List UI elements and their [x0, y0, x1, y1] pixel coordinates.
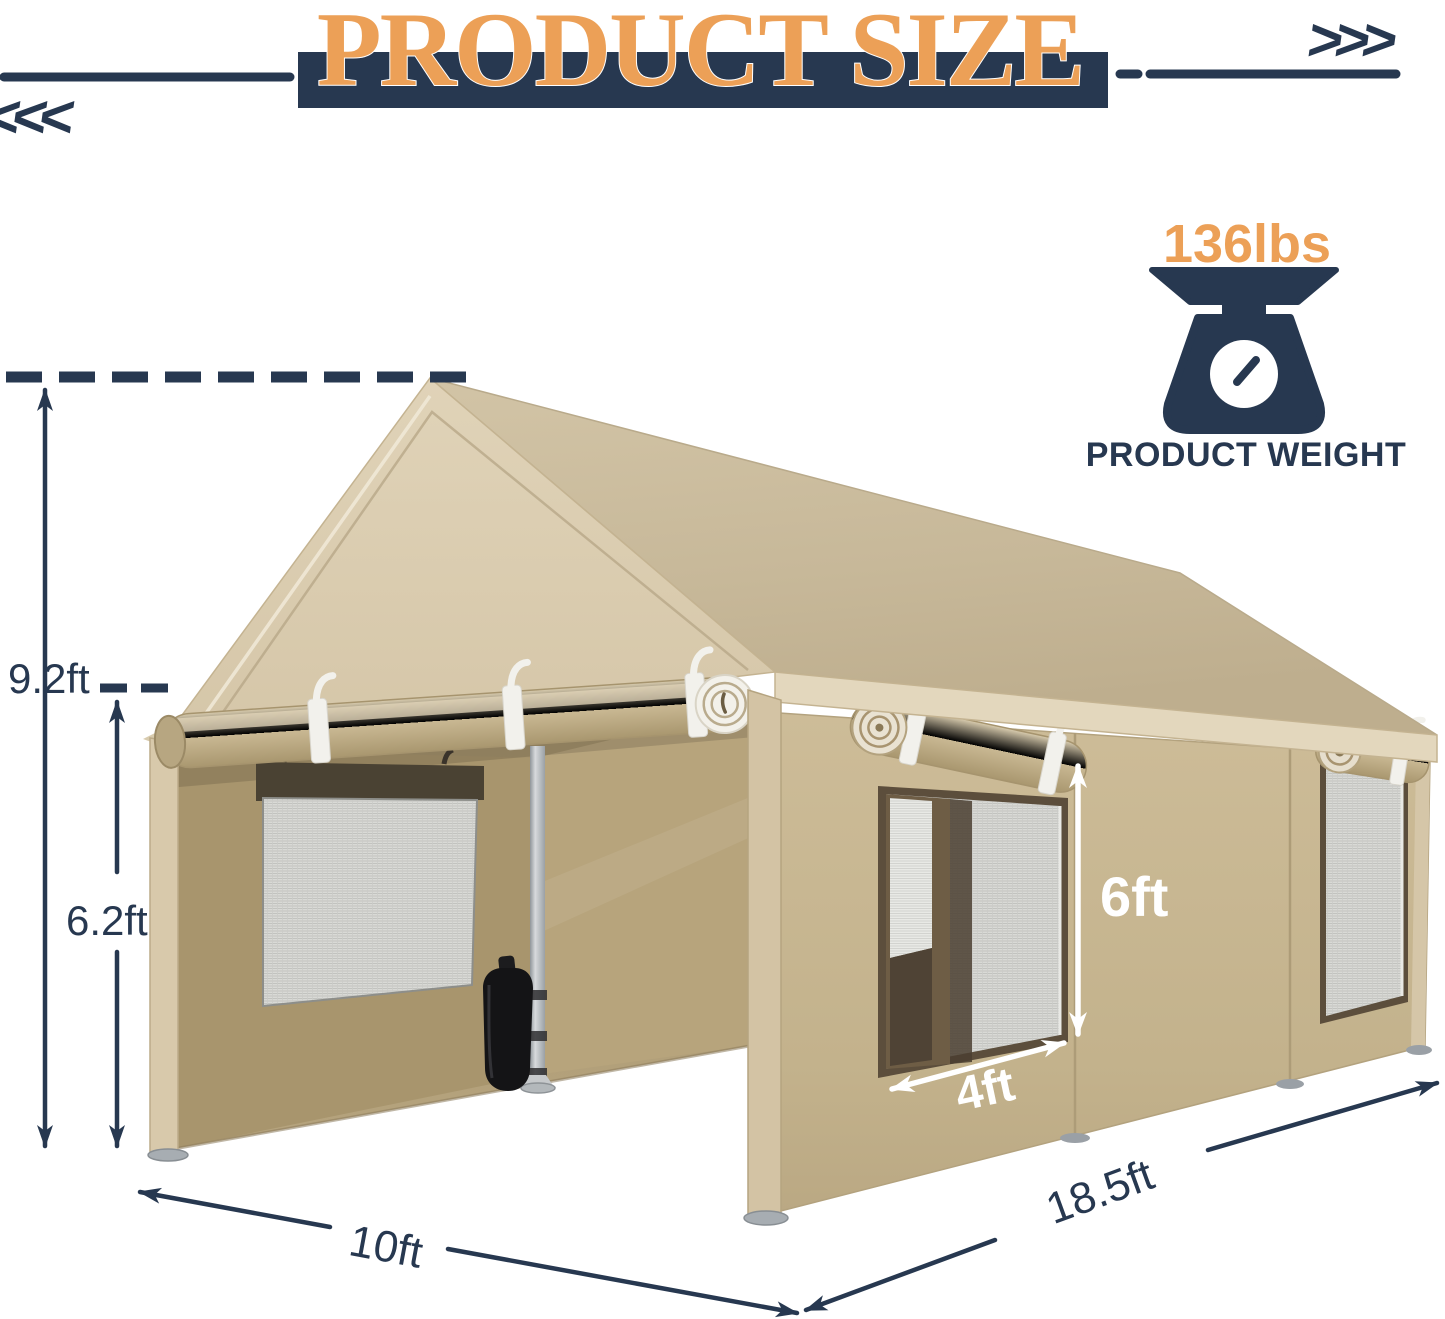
weighing-scale-icon: [1152, 270, 1336, 430]
far-window-through-mesh: [890, 798, 932, 958]
front-width-arrow-left: [140, 1192, 330, 1227]
window-height-label: 6ft: [1100, 865, 1168, 928]
interior-window-mesh: [263, 798, 477, 1006]
side-length-arrow-left: [806, 1240, 995, 1310]
sandbag-weight: [483, 955, 533, 1091]
window-mullion: [950, 799, 972, 1064]
front-width-label: 10ft: [345, 1216, 426, 1278]
window-mesh: [1326, 768, 1402, 1016]
pole-foot-plate: [148, 1149, 188, 1161]
front-width-arrow-right: [448, 1249, 797, 1313]
header: <<< PRODUCT SIZE >>>: [0, 0, 1400, 150]
front-right-pole: [748, 690, 781, 1215]
side-window-rear: [1320, 762, 1408, 1024]
roll-strap: [307, 698, 330, 763]
weight-value: 136lbs: [1163, 214, 1331, 274]
interior-window-roll: [256, 762, 484, 801]
left-chevrons-icon: <<<: [0, 82, 77, 150]
weight-label: PRODUCT WEIGHT: [1086, 436, 1407, 474]
interior-window: [256, 748, 484, 1006]
peak-height-label: 9.2ft: [8, 655, 90, 702]
side-length-label: 18.5ft: [1040, 1150, 1160, 1234]
product-size-infographic: <<< PRODUCT SIZE >>> 136lbs PRODUCT WEIG…: [0, 0, 1445, 1319]
weight-badge: 136lbs PRODUCT WEIGHT: [1086, 214, 1407, 474]
window-interior-dark: [890, 948, 932, 1066]
pole-foot-plate: [521, 1083, 555, 1093]
wall-foot-plate: [1276, 1079, 1304, 1089]
wall-foot-plate: [1060, 1133, 1090, 1143]
front-left-pole: [150, 738, 178, 1152]
product-size-figure: <<< PRODUCT SIZE >>> 136lbs PRODUCT WEIG…: [0, 0, 1445, 1319]
right-chevrons-icon: >>>: [1304, 5, 1400, 73]
side-height-label: 6.2ft: [66, 897, 148, 944]
wall-foot-plate: [1406, 1045, 1432, 1055]
page-title: PRODUCT SIZE: [317, 0, 1083, 108]
side-window-front: [878, 786, 1068, 1078]
roll-strap: [502, 685, 525, 750]
carport-interior: [168, 705, 755, 1150]
carport-illustration: [143, 378, 1437, 1225]
pole-foot-plate: [744, 1211, 788, 1225]
